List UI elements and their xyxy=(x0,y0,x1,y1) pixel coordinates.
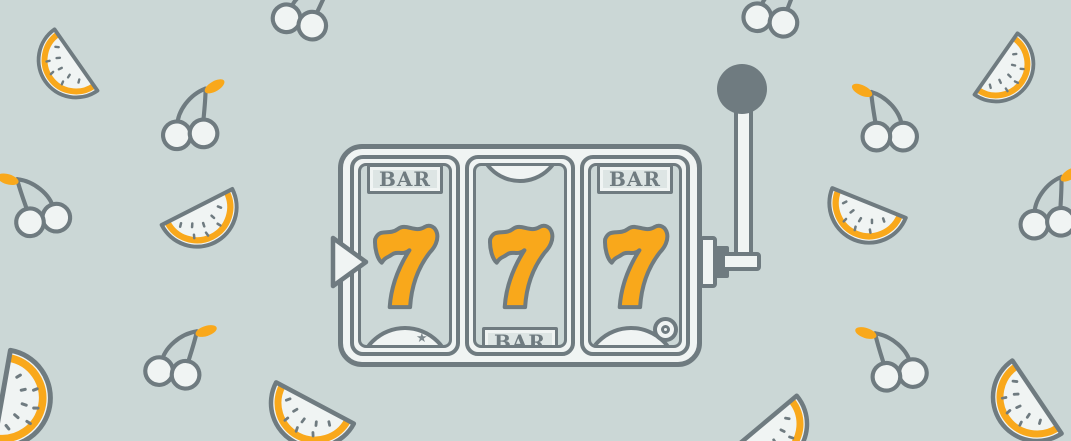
ball-symbol-partial xyxy=(358,326,452,348)
cherry-stem-ring-icon xyxy=(653,317,678,342)
cherries-icon xyxy=(846,81,921,153)
watermelon-icon xyxy=(729,396,825,441)
reel-2: BAR xyxy=(465,155,575,356)
watermelon-icon xyxy=(0,350,58,441)
cherries-icon xyxy=(270,0,353,45)
slot-machine-body: BAR ★ BAR xyxy=(338,144,702,367)
cherries-icon xyxy=(0,164,72,239)
seven-symbol xyxy=(597,216,673,318)
watermelon-icon xyxy=(975,33,1049,116)
cherries-icon xyxy=(853,320,928,392)
watermelon-icon xyxy=(817,188,905,254)
slot-banner-illustration: BAR ★ BAR xyxy=(0,0,1071,441)
seven-symbol xyxy=(367,216,443,318)
lever-arm xyxy=(721,252,761,271)
bar-symbol: BAR xyxy=(482,327,558,348)
ball-symbol-partial xyxy=(477,163,563,183)
bar-label: BAR xyxy=(379,167,431,191)
lever-rod[interactable] xyxy=(734,98,753,266)
payline-pointer-icon xyxy=(328,233,374,295)
reel-3: BAR xyxy=(580,155,690,356)
cherries-icon xyxy=(1012,164,1071,243)
watermelon-icon xyxy=(162,189,251,260)
bar-label: BAR xyxy=(494,330,546,348)
lever-handle-ball[interactable] xyxy=(717,64,767,114)
seven-symbol xyxy=(482,216,558,318)
reel-2-window: BAR xyxy=(473,163,567,348)
cherries-icon xyxy=(741,0,820,41)
bar-label: BAR xyxy=(609,167,661,191)
watermelon-icon xyxy=(255,382,353,441)
star-icon: ★ xyxy=(416,332,428,345)
reel-3-window: BAR xyxy=(588,163,682,348)
cherries-icon xyxy=(156,76,235,153)
watermelon-icon xyxy=(976,361,1062,441)
cherries-icon xyxy=(144,318,219,390)
bar-symbol: BAR xyxy=(597,164,673,194)
bar-symbol: BAR xyxy=(367,164,443,194)
watermelon-icon xyxy=(24,29,98,112)
cherry-stem-ring-hole xyxy=(661,325,670,334)
